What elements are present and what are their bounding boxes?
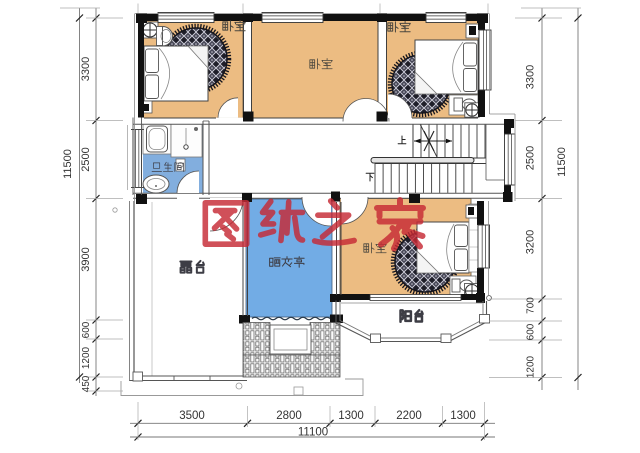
svg-text:600: 600 [81,321,92,338]
svg-text:11500: 11500 [556,147,568,177]
svg-text:600: 600 [526,323,537,340]
svg-text:3300: 3300 [80,57,92,81]
svg-text:1200: 1200 [526,355,537,378]
svg-text:1300: 1300 [338,410,364,422]
svg-text:3900: 3900 [80,247,92,271]
svg-text:2500: 2500 [80,147,92,171]
svg-text:3200: 3200 [525,230,537,254]
svg-text:450: 450 [81,375,92,392]
svg-text:1300: 1300 [450,410,476,422]
svg-text:3500: 3500 [179,410,205,422]
svg-text:2800: 2800 [276,410,302,422]
svg-text:2200: 2200 [396,410,422,422]
svg-text:11100: 11100 [298,427,328,439]
svg-text:700: 700 [526,297,537,314]
svg-text:1200: 1200 [81,346,92,369]
svg-text:11500: 11500 [62,149,74,179]
svg-text:3300: 3300 [525,65,537,89]
svg-text:2500: 2500 [525,146,537,170]
